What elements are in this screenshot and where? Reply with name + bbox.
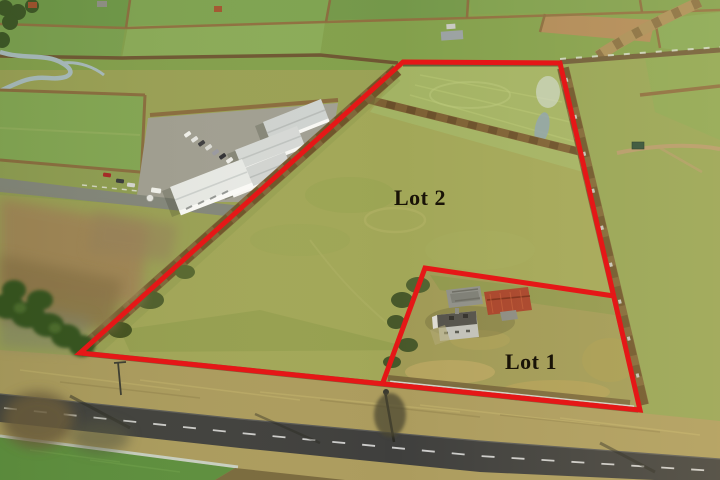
lot2-label: Lot 2	[394, 185, 446, 210]
lot1-label: Lot 1	[505, 349, 557, 374]
aerial-photo-scene: Lot 2 Lot 1	[0, 0, 720, 480]
aerial-photo: Lot 2 Lot 1	[0, 0, 720, 480]
